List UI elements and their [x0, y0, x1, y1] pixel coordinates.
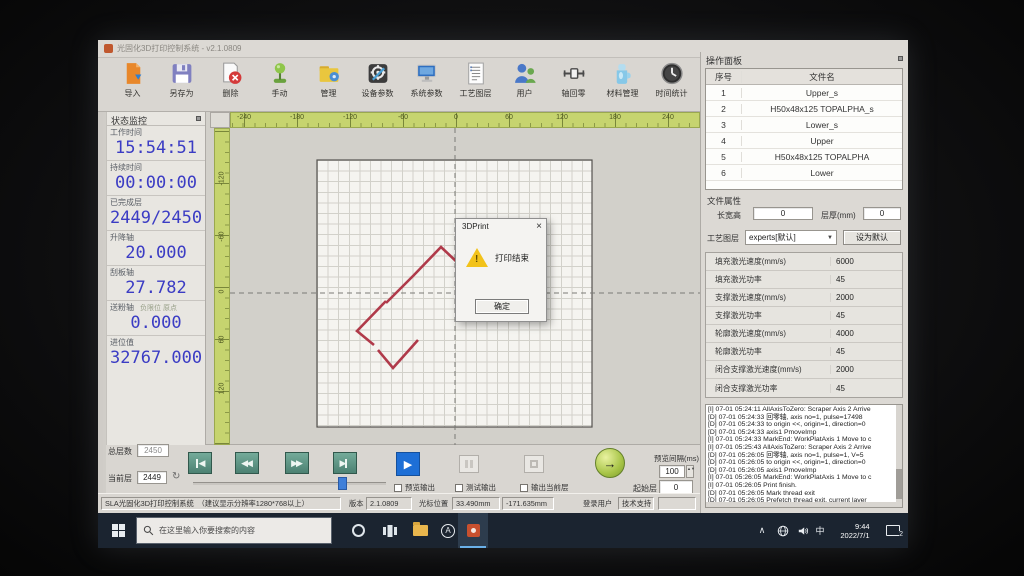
print-contour-upper: [386, 247, 459, 303]
toolbar-button-users[interactable]: 用户: [500, 61, 549, 109]
status-field-finished-layers: 已完成层 2449/2450: [107, 196, 205, 231]
axis-limit-flags: 负限位 原点: [140, 305, 177, 312]
print-contour-left: [357, 301, 386, 345]
toolbar-button-manage[interactable]: 管理: [304, 61, 353, 109]
dimension-field[interactable]: 0: [753, 207, 813, 220]
param-row: 闭合支撑激光速度(mm/s)2000: [706, 361, 902, 379]
file-table[interactable]: 序号 文件名 1Upper_s 2H50x48x125 TOPALPHA_s 3…: [705, 68, 903, 190]
checkbox-icon: [455, 484, 463, 492]
vertical-ruler: -120 -60 0 60 120: [214, 128, 230, 445]
layer-thickness-label: 层厚(mm): [821, 210, 856, 221]
process-preset-dropdown[interactable]: experts[默认]▼: [745, 230, 837, 245]
operation-panel: 操作面板 序号 文件名 1Upper_s 2H50x48x125 TOPALPH…: [700, 52, 908, 513]
taskbar-search[interactable]: 在这里输入你要搜索的内容: [136, 517, 332, 544]
total-layers-label: 总层数: [108, 446, 132, 457]
current-layer-field[interactable]: 2449: [137, 471, 167, 484]
test-output-checkbox[interactable]: 测试输出: [455, 482, 496, 493]
log-line: [D] 07-01 05:26:05 to origin <<, origin=…: [708, 459, 895, 467]
layer-slider-track[interactable]: [193, 482, 386, 485]
process-layers-icon: [463, 61, 489, 86]
notification-badge: 2: [899, 531, 903, 538]
cursor-x-value: 33.490mm: [452, 497, 500, 510]
file-row[interactable]: 3Lower_s: [706, 117, 902, 133]
log-line: [D] 07-01 05:24:33 回零轴, axis no=1, pulse…: [708, 414, 895, 422]
log-line: [D] 07-01 05:24:33 to origin <<, origin=…: [708, 421, 895, 429]
log-line: [I] 07-01 05:24:33 MarkEnd: WorkPlatAxis…: [708, 436, 895, 444]
go-button[interactable]: →: [595, 448, 625, 478]
log-line: [I] 07-01 05:24:11 AllAxisToZero: Scrape…: [708, 406, 895, 414]
dialog-titlebar: 3DPrint ×: [456, 219, 546, 234]
toolbar-button-process-layers[interactable]: 工艺图层: [451, 61, 500, 109]
param-row: 支撑激光速度(mm/s)2000: [706, 289, 902, 307]
save-as-icon: [169, 61, 195, 86]
cursor-y-value: -171.635mm: [502, 497, 554, 510]
file-explorer-icon[interactable]: [406, 513, 434, 548]
pin-icon[interactable]: [898, 56, 903, 61]
status-field-encoder-value: 进位值 32767.000: [107, 336, 205, 370]
status-field-duration: 持续时间 00:00:00: [107, 161, 205, 196]
monitor-bezel: 光固化3D打印控制系统 - v2.1.0809 导入 另存为 删除 手动 管理 …: [0, 0, 1024, 576]
horizontal-ruler: -240 -180 -120 -60 0 60 120 180 240: [230, 112, 700, 128]
toolbar-button-axis-home[interactable]: 轴回零: [549, 61, 598, 109]
version-value: 2.1.0809: [366, 497, 412, 510]
close-icon[interactable]: ×: [536, 222, 542, 232]
laser-params-table[interactable]: 填充激光速度(mm/s)6000 填充激光功率45 支撑激光速度(mm/s)20…: [705, 252, 903, 398]
print-contour-lower: [378, 340, 418, 368]
total-layers-field[interactable]: 2450: [137, 444, 169, 457]
log-line: [I] 07-01 05:25:43 AllAxisToZero: Scrape…: [708, 444, 895, 452]
start-button[interactable]: [102, 513, 134, 548]
statusbar-extra: [658, 497, 696, 510]
statusbar-app-name: SLA光固化3D打印控制系统 （建议显示分辨率1280*768以上）: [101, 497, 341, 510]
volume-icon[interactable]: [794, 513, 812, 548]
operation-panel-title: 操作面板: [706, 54, 742, 64]
toolbar-button-save-as[interactable]: 另存为: [157, 61, 206, 109]
log-horizontal-scrollbar[interactable]: [706, 502, 898, 507]
toolbar-button-system-params[interactable]: 系统参数: [402, 61, 451, 109]
layer-preview-canvas[interactable]: -240 -180 -120 -60 0 60 120 180 240 -120…: [206, 112, 700, 445]
set-default-button[interactable]: 设为默认: [843, 230, 901, 245]
cursor-position-label: 光标位置: [416, 497, 451, 510]
ruler-corner: [210, 112, 230, 128]
dialog-message: 打印结束: [495, 252, 529, 264]
support-label: 技术支持: [618, 497, 654, 510]
status-field-powder-axis: 送粉轴负限位 原点 0.000: [107, 301, 205, 336]
refresh-icon[interactable]: ↻: [172, 471, 180, 482]
current-layer-label: 当前层: [108, 473, 132, 484]
windows-taskbar: 在这里输入你要搜索的内容 A ∧ 中 9:442022/7/1 2: [98, 513, 908, 548]
main-toolbar: 导入 另存为 删除 手动 管理 设备参数 系统参数 工艺图层: [98, 58, 700, 112]
chevron-down-icon: ▼: [827, 235, 833, 241]
ime-indicator[interactable]: 中: [812, 513, 828, 548]
file-row[interactable]: 1Upper_s: [706, 85, 902, 101]
first-layer-button[interactable]: ◀: [188, 452, 212, 474]
file-row[interactable]: 2H50x48x125 TOPALPHA_s: [706, 101, 902, 117]
preview-output-checkbox[interactable]: 预览输出: [394, 482, 435, 493]
toolbar-button-manual[interactable]: 手动: [255, 61, 304, 109]
toolbar-button-import[interactable]: 导入: [108, 61, 157, 109]
checkbox-icon: [520, 484, 528, 492]
dialog-title: 3DPrint: [462, 222, 489, 231]
network-icon[interactable]: [774, 513, 792, 548]
log-line: [D] 07-01 05:26:05 axis1 PmoveImp: [708, 467, 895, 475]
print-app-icon: [467, 524, 480, 537]
pause-button[interactable]: [459, 455, 479, 473]
print-finished-dialog: 3DPrint × ! 打印结束 确定: [455, 218, 547, 322]
param-row: 填充激光速度(mm/s)6000: [706, 253, 902, 271]
log-line: [I] 07-01 05:26:05 Print finish.: [708, 482, 895, 490]
axis-home-icon: [561, 61, 587, 86]
toolbar-button-material[interactable]: 材料管理: [598, 61, 647, 109]
screen: 光固化3D打印控制系统 - v2.1.0809 导入 另存为 删除 手动 管理 …: [98, 40, 908, 548]
param-row: 轮廓激光功率45: [706, 343, 902, 361]
users-icon: [512, 61, 538, 86]
device-params-icon: [365, 61, 391, 86]
spinner-arrows[interactable]: ▲▼: [686, 465, 694, 478]
preview-interval-label: 预览间隔(ms): [654, 453, 699, 464]
active-app-button[interactable]: [458, 513, 488, 548]
status-field-scraper-axis: 刮板轴 27.782: [107, 266, 205, 301]
search-icon: [143, 525, 154, 536]
file-row[interactable]: 6Lower: [706, 165, 902, 181]
tray-expand-chevron[interactable]: ∧: [754, 513, 770, 548]
app-icon: [104, 44, 113, 53]
tray-date: 2022/7/1: [840, 531, 869, 540]
status-field-lift-axis: 升降轴 20.000: [107, 231, 205, 266]
playback-controls: 总层数 2450 当前层 2449 ↻ ◀ ◀◀ ▶▶ ▶ ▶ 预览输出 测试输…: [106, 445, 700, 493]
login-user-label: 登录用户: [580, 497, 615, 510]
version-label: 版本: [346, 497, 367, 510]
window-title: 光固化3D打印控制系统 - v2.1.0809: [117, 43, 241, 54]
log-line: [I] 07-01 05:26:05 MarkEnd: WorkPlatAxis…: [708, 474, 895, 482]
manage-folder-icon: [316, 61, 342, 86]
windows-logo-icon: [112, 524, 125, 537]
param-row: 闭合支撑激光功率45: [706, 379, 902, 397]
layer-thickness-field[interactable]: 0: [863, 207, 901, 220]
search-placeholder: 在这里输入你要搜索的内容: [159, 525, 255, 536]
last-layer-button[interactable]: ▶: [333, 452, 357, 474]
log-line: [D] 07-01 05:26:05 Mark thread exit: [708, 490, 895, 498]
manual-joystick-icon: [267, 61, 293, 86]
time-stats-clock-icon: [659, 61, 685, 86]
stop-button[interactable]: [524, 455, 544, 473]
checkbox-icon: [394, 484, 402, 492]
play-button[interactable]: ▶: [396, 452, 420, 476]
param-row: 轮廓激光速度(mm/s)4000: [706, 325, 902, 343]
delete-icon: [218, 61, 244, 86]
cortana-icon[interactable]: [344, 513, 372, 548]
status-monitor-panel: 状态监控 工作时间 15:54:51 持续时间 00:00:00 已完成层 24…: [106, 112, 206, 445]
log-vertical-scrollbar[interactable]: [896, 405, 902, 507]
forward-button[interactable]: ▶▶: [285, 452, 309, 474]
file-props-title: 文件属性: [707, 195, 741, 207]
toolbar-button-time-stats[interactable]: 时间统计: [647, 61, 696, 109]
start-layer-field[interactable]: 0: [659, 480, 693, 494]
app-statusbar: SLA光固化3D打印控制系统 （建议显示分辨率1280*768以上） 版本 2.…: [98, 493, 700, 513]
system-params-icon: [414, 61, 440, 86]
material-kettle-icon: [610, 61, 636, 86]
file-row[interactable]: 4Upper: [706, 133, 902, 149]
layer-slider-thumb[interactable]: [338, 477, 347, 490]
process-layer-label: 工艺图层: [707, 233, 739, 244]
toolbar-button-device-params[interactable]: 设备参数: [353, 61, 402, 109]
file-row[interactable]: 5H50x48x125 TOPALPHA: [706, 149, 902, 165]
status-field-work-time: 工作时间 15:54:51: [107, 126, 205, 161]
ok-button[interactable]: 确定: [475, 299, 529, 314]
task-view-icon[interactable]: [376, 513, 404, 548]
toolbar-button-delete[interactable]: 删除: [206, 61, 255, 109]
dimension-label: 长宽高: [717, 210, 741, 221]
log-list[interactable]: [I] 07-01 05:24:11 AllAxisToZero: Scrape…: [705, 404, 903, 508]
preview-interval-field[interactable]: 100: [659, 465, 685, 478]
output-current-layer-checkbox[interactable]: 输出当前层: [520, 482, 569, 493]
action-center-icon[interactable]: 2: [882, 513, 904, 548]
pin-icon[interactable]: [196, 116, 201, 121]
log-line: [D] 07-01 05:26:05 回零轴, axis no=1, pulse…: [708, 452, 895, 460]
param-row: 支撑激光功率45: [706, 307, 902, 325]
import-icon: [120, 61, 146, 86]
rewind-button[interactable]: ◀◀: [235, 452, 259, 474]
param-row: 填充激光功率45: [706, 271, 902, 289]
warning-icon: !: [466, 248, 488, 267]
clock[interactable]: 9:442022/7/1: [832, 513, 878, 548]
tray-time: 9:44: [840, 522, 869, 531]
log-line: [D] 07-01 05:24:33 axis1 PmoveImp: [708, 429, 895, 437]
file-table-header: 序号 文件名: [706, 69, 902, 85]
status-panel-title: 状态监控: [111, 114, 147, 123]
